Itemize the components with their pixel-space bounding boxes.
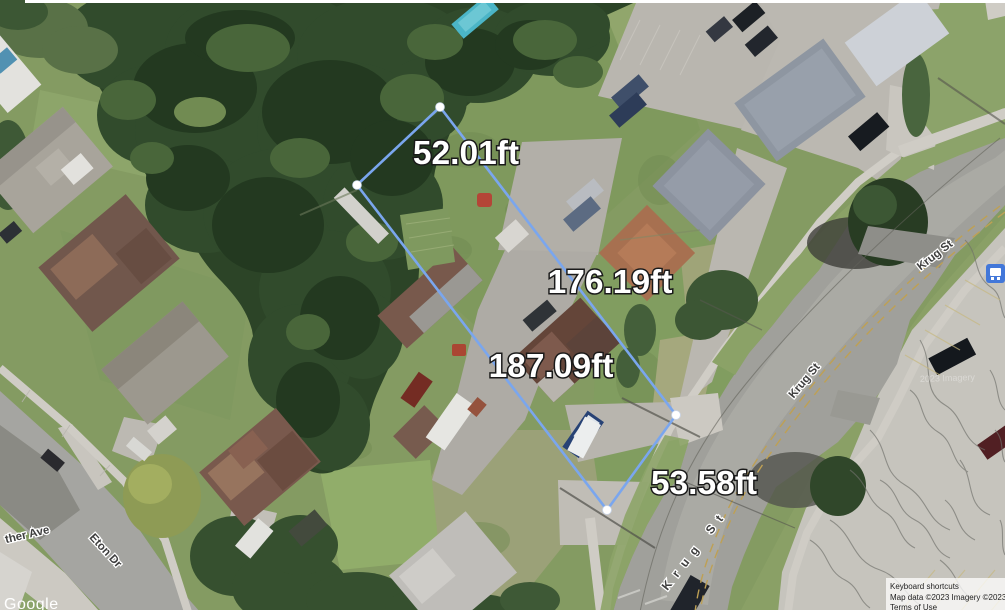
svg-text:Terms of Use: Terms of Use: [890, 603, 938, 612]
svg-text:187.09ft: 187.09ft: [489, 348, 614, 385]
svg-text:53.58ft: 53.58ft: [651, 465, 757, 502]
svg-text:176.19ft: 176.19ft: [548, 264, 673, 301]
svg-text:Google: Google: [4, 596, 59, 612]
svg-text:52.01ft: 52.01ft: [413, 135, 519, 172]
svg-text:Keyboard shortcuts: Keyboard shortcuts: [890, 582, 959, 591]
svg-text:2023 Imagery: 2023 Imagery: [920, 372, 976, 384]
svg-text:Map data ©2023 Imagery ©2023: Map data ©2023 Imagery ©2023: [890, 593, 1005, 602]
